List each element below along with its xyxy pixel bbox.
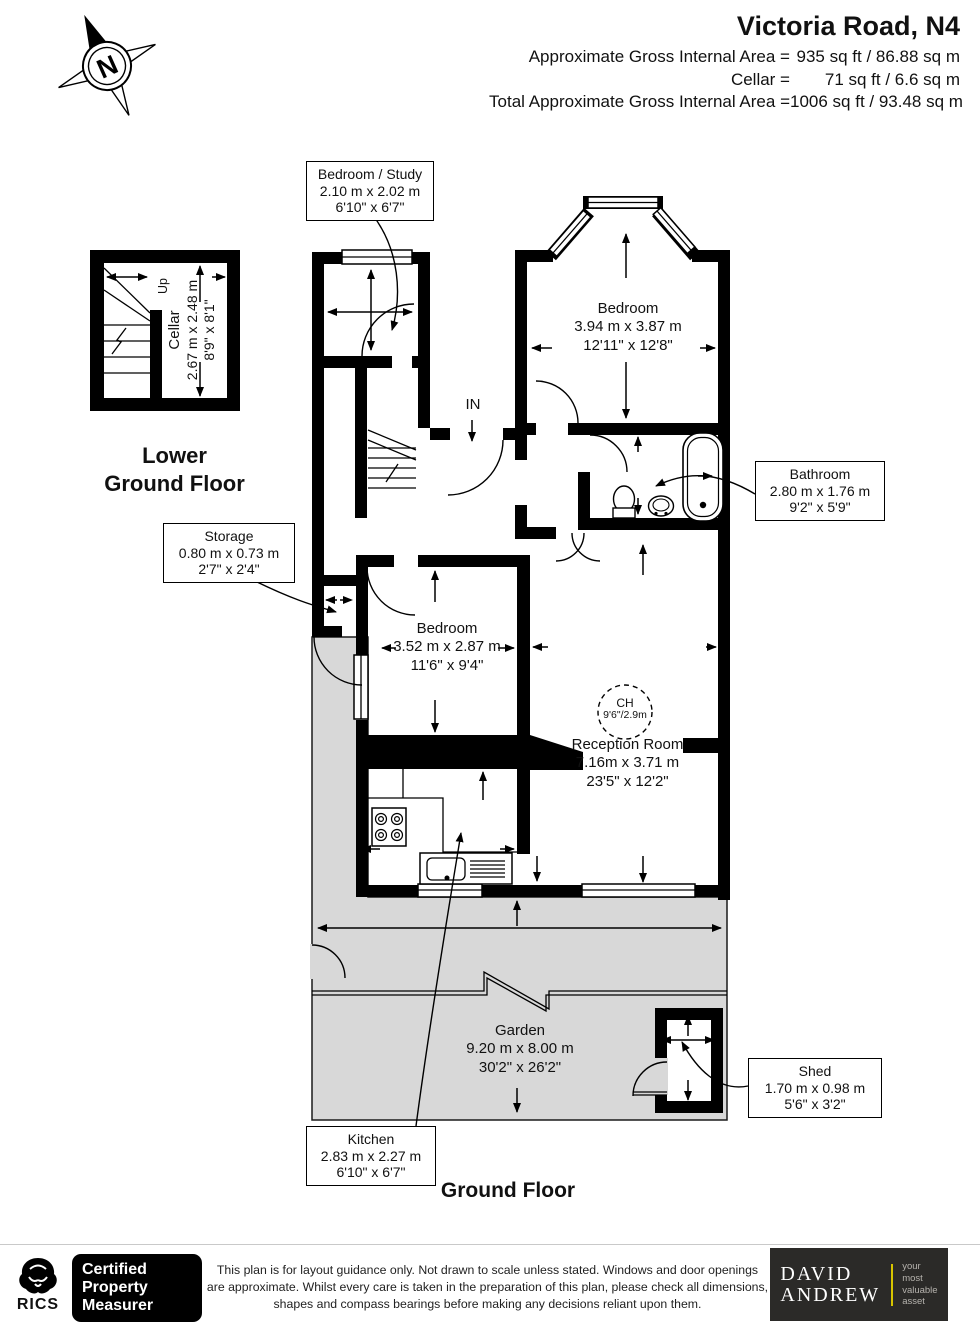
study-window: [342, 250, 412, 264]
room-imperial: 6'10" x 6'7": [311, 199, 429, 216]
rics-logo: RICS: [12, 1257, 64, 1314]
tagline-word: your: [902, 1261, 937, 1273]
toilet-icon: [613, 486, 635, 518]
bay-window-front: [588, 197, 658, 208]
brand-name-line: DAVID: [780, 1264, 880, 1285]
disclaimer-line: are approximate. Whilst every care is ta…: [205, 1279, 770, 1296]
room-metric: 2.80 m x 1.76 m: [760, 483, 880, 500]
david-andrew-logo: DAVID ANDREW your most valuable asset: [770, 1248, 948, 1321]
tagline-word: most: [902, 1273, 937, 1285]
room-name: Bedroom: [347, 620, 547, 638]
ch-value: 9'6"/2.9m: [593, 710, 657, 722]
bedroom-study-callout: Bedroom / Study 2.10 m x 2.02 m 6'10" x …: [306, 161, 434, 221]
room-name: Garden: [420, 1022, 620, 1040]
disclaimer-text: This plan is for layout guidance only. N…: [205, 1262, 770, 1314]
room-imperial: 2'7" x 2'4": [168, 561, 290, 578]
kitchen-sink-icon: [420, 853, 512, 884]
room-imperial: 12'11" x 12'8": [528, 337, 728, 355]
brand-tagline: your most valuable asset: [902, 1261, 937, 1309]
area-value: 935 sq ft / 86.88 sq m: [790, 46, 960, 68]
badge-line: Measurer: [82, 1297, 192, 1315]
title-block: Victoria Road, N4 Approximate Gross Inte…: [489, 12, 960, 114]
lower-ground-floor-label: Lower Ground Floor: [82, 442, 267, 497]
badge-line: Certified: [82, 1261, 192, 1279]
floor-name-line: Ground Floor: [82, 470, 267, 498]
brand-divider: [891, 1264, 893, 1306]
reception-door-arc-left: [556, 533, 584, 561]
stove-icon: [372, 808, 406, 846]
room-name: Storage: [168, 528, 290, 545]
storage-callout: Storage 0.80 m x 0.73 m 2'7" x 2'4": [163, 523, 295, 583]
entrance-door-arc: [448, 440, 503, 495]
room-metric: 7.16m x 3.71 m: [525, 754, 730, 772]
room-imperial: 9'2" x 5'9": [760, 499, 880, 516]
disclaimer-line: shapes and compass bearings before makin…: [205, 1296, 770, 1313]
cellar-up-label: Up: [156, 269, 170, 303]
tagline-word: asset: [902, 1296, 937, 1308]
room-metric: 0.80 m x 0.73 m: [168, 545, 290, 562]
bedroom-main-label: Bedroom 3.94 m x 3.87 m 12'11" x 12'8": [528, 300, 728, 355]
room-imperial: 23'5" x 12'2": [525, 773, 730, 791]
bay-window-right: [653, 208, 695, 254]
room-name: Bathroom: [760, 466, 880, 483]
kitchen-callout: Kitchen 2.83 m x 2.27 m 6'10" x 6'7": [306, 1126, 436, 1186]
area-line: Total Approximate Gross Internal Area = …: [489, 91, 960, 113]
area-value: 1006 sq ft / 93.48 sq m: [790, 91, 960, 113]
kitchen-window: [418, 884, 482, 897]
room-metric: 2.83 m x 2.27 m: [311, 1148, 431, 1165]
floorplan-page: N Victoria Road, N4 Approximate Gross In…: [0, 0, 980, 1342]
area-label: Cellar =: [731, 69, 790, 91]
rics-wordmark: RICS: [12, 1296, 64, 1314]
compass-icon: N: [50, 4, 168, 124]
bedroom-main-door-arc: [536, 381, 578, 423]
lion-icon: [15, 1257, 61, 1295]
room-name: Kitchen: [311, 1131, 431, 1148]
reception-door-arc-right: [572, 533, 600, 561]
room-imperial: 11'6" x 9'4": [347, 657, 547, 675]
brand-name-line: ANDREW: [780, 1285, 880, 1306]
bedroom-second-door-arc: [367, 567, 415, 615]
shed-callout: Shed 1.70 m x 0.98 m 5'6" x 3'2": [748, 1058, 882, 1118]
floor-name-line: Lower: [82, 442, 267, 470]
page-title: Victoria Road, N4: [489, 12, 960, 40]
ground-floor-label: Ground Floor: [408, 1178, 608, 1204]
room-metric: 1.70 m x 0.98 m: [753, 1080, 877, 1097]
area-label: Approximate Gross Internal Area =: [529, 46, 790, 68]
room-imperial: 5'6" x 3'2": [753, 1096, 877, 1113]
bathtub-icon: [683, 433, 723, 521]
disclaimer-line: This plan is for layout guidance only. N…: [205, 1262, 770, 1279]
room-imperial: 6'10" x 6'7": [311, 1164, 431, 1181]
area-value: 71 sq ft / 6.6 sq m: [790, 69, 960, 91]
room-metric: 9.20 m x 8.00 m: [420, 1040, 620, 1058]
basin-icon: [649, 496, 674, 516]
area-line: Cellar = 71 sq ft / 6.6 sq m: [489, 69, 960, 91]
reception-garden-doors: [582, 884, 695, 897]
room-metric: 3.94 m x 3.87 m: [528, 318, 728, 336]
bay-window-left: [549, 210, 591, 256]
bathroom-callout: Bathroom 2.80 m x 1.76 m 9'2" x 5'9": [755, 461, 885, 521]
badge-line: Property: [82, 1279, 192, 1297]
area-label: Total Approximate Gross Internal Area =: [489, 91, 790, 113]
ceiling-height-label: CH 9'6"/2.9m: [593, 697, 657, 722]
entrance-in-label: IN: [455, 396, 491, 413]
room-name: Bedroom / Study: [311, 166, 429, 183]
cellar-label: Cellar 2.67 m x 2.48 m 8'9" x 8'1": [166, 250, 218, 410]
area-line: Approximate Gross Internal Area = 935 sq…: [489, 46, 960, 68]
certified-property-measurer-badge: Certified Property Measurer: [72, 1254, 202, 1322]
room-name: Shed: [753, 1063, 877, 1080]
room-imperial: 8'9" x 8'1": [201, 250, 218, 410]
bathroom-door-arc: [590, 435, 627, 472]
room-metric: 3.52 m x 2.87 m: [347, 638, 547, 656]
garden-label: Garden 9.20 m x 8.00 m 30'2" x 26'2": [420, 1022, 620, 1077]
hall-stairs: [368, 430, 416, 488]
footer-bar: RICS Certified Property Measurer This pl…: [0, 1244, 980, 1342]
room-metric: 2.67 m x 2.48 m: [184, 250, 201, 410]
room-name: Bedroom: [528, 300, 728, 318]
room-imperial: 30'2" x 26'2": [420, 1059, 620, 1077]
bedroom-second-label: Bedroom 3.52 m x 2.87 m 11'6" x 9'4": [347, 620, 547, 675]
brand-name: DAVID ANDREW: [780, 1264, 880, 1306]
room-name: Reception Room: [525, 736, 730, 754]
tagline-word: valuable: [902, 1285, 937, 1297]
room-metric: 2.10 m x 2.02 m: [311, 183, 429, 200]
reception-label: Reception Room 7.16m x 3.71 m 23'5" x 12…: [525, 736, 730, 791]
